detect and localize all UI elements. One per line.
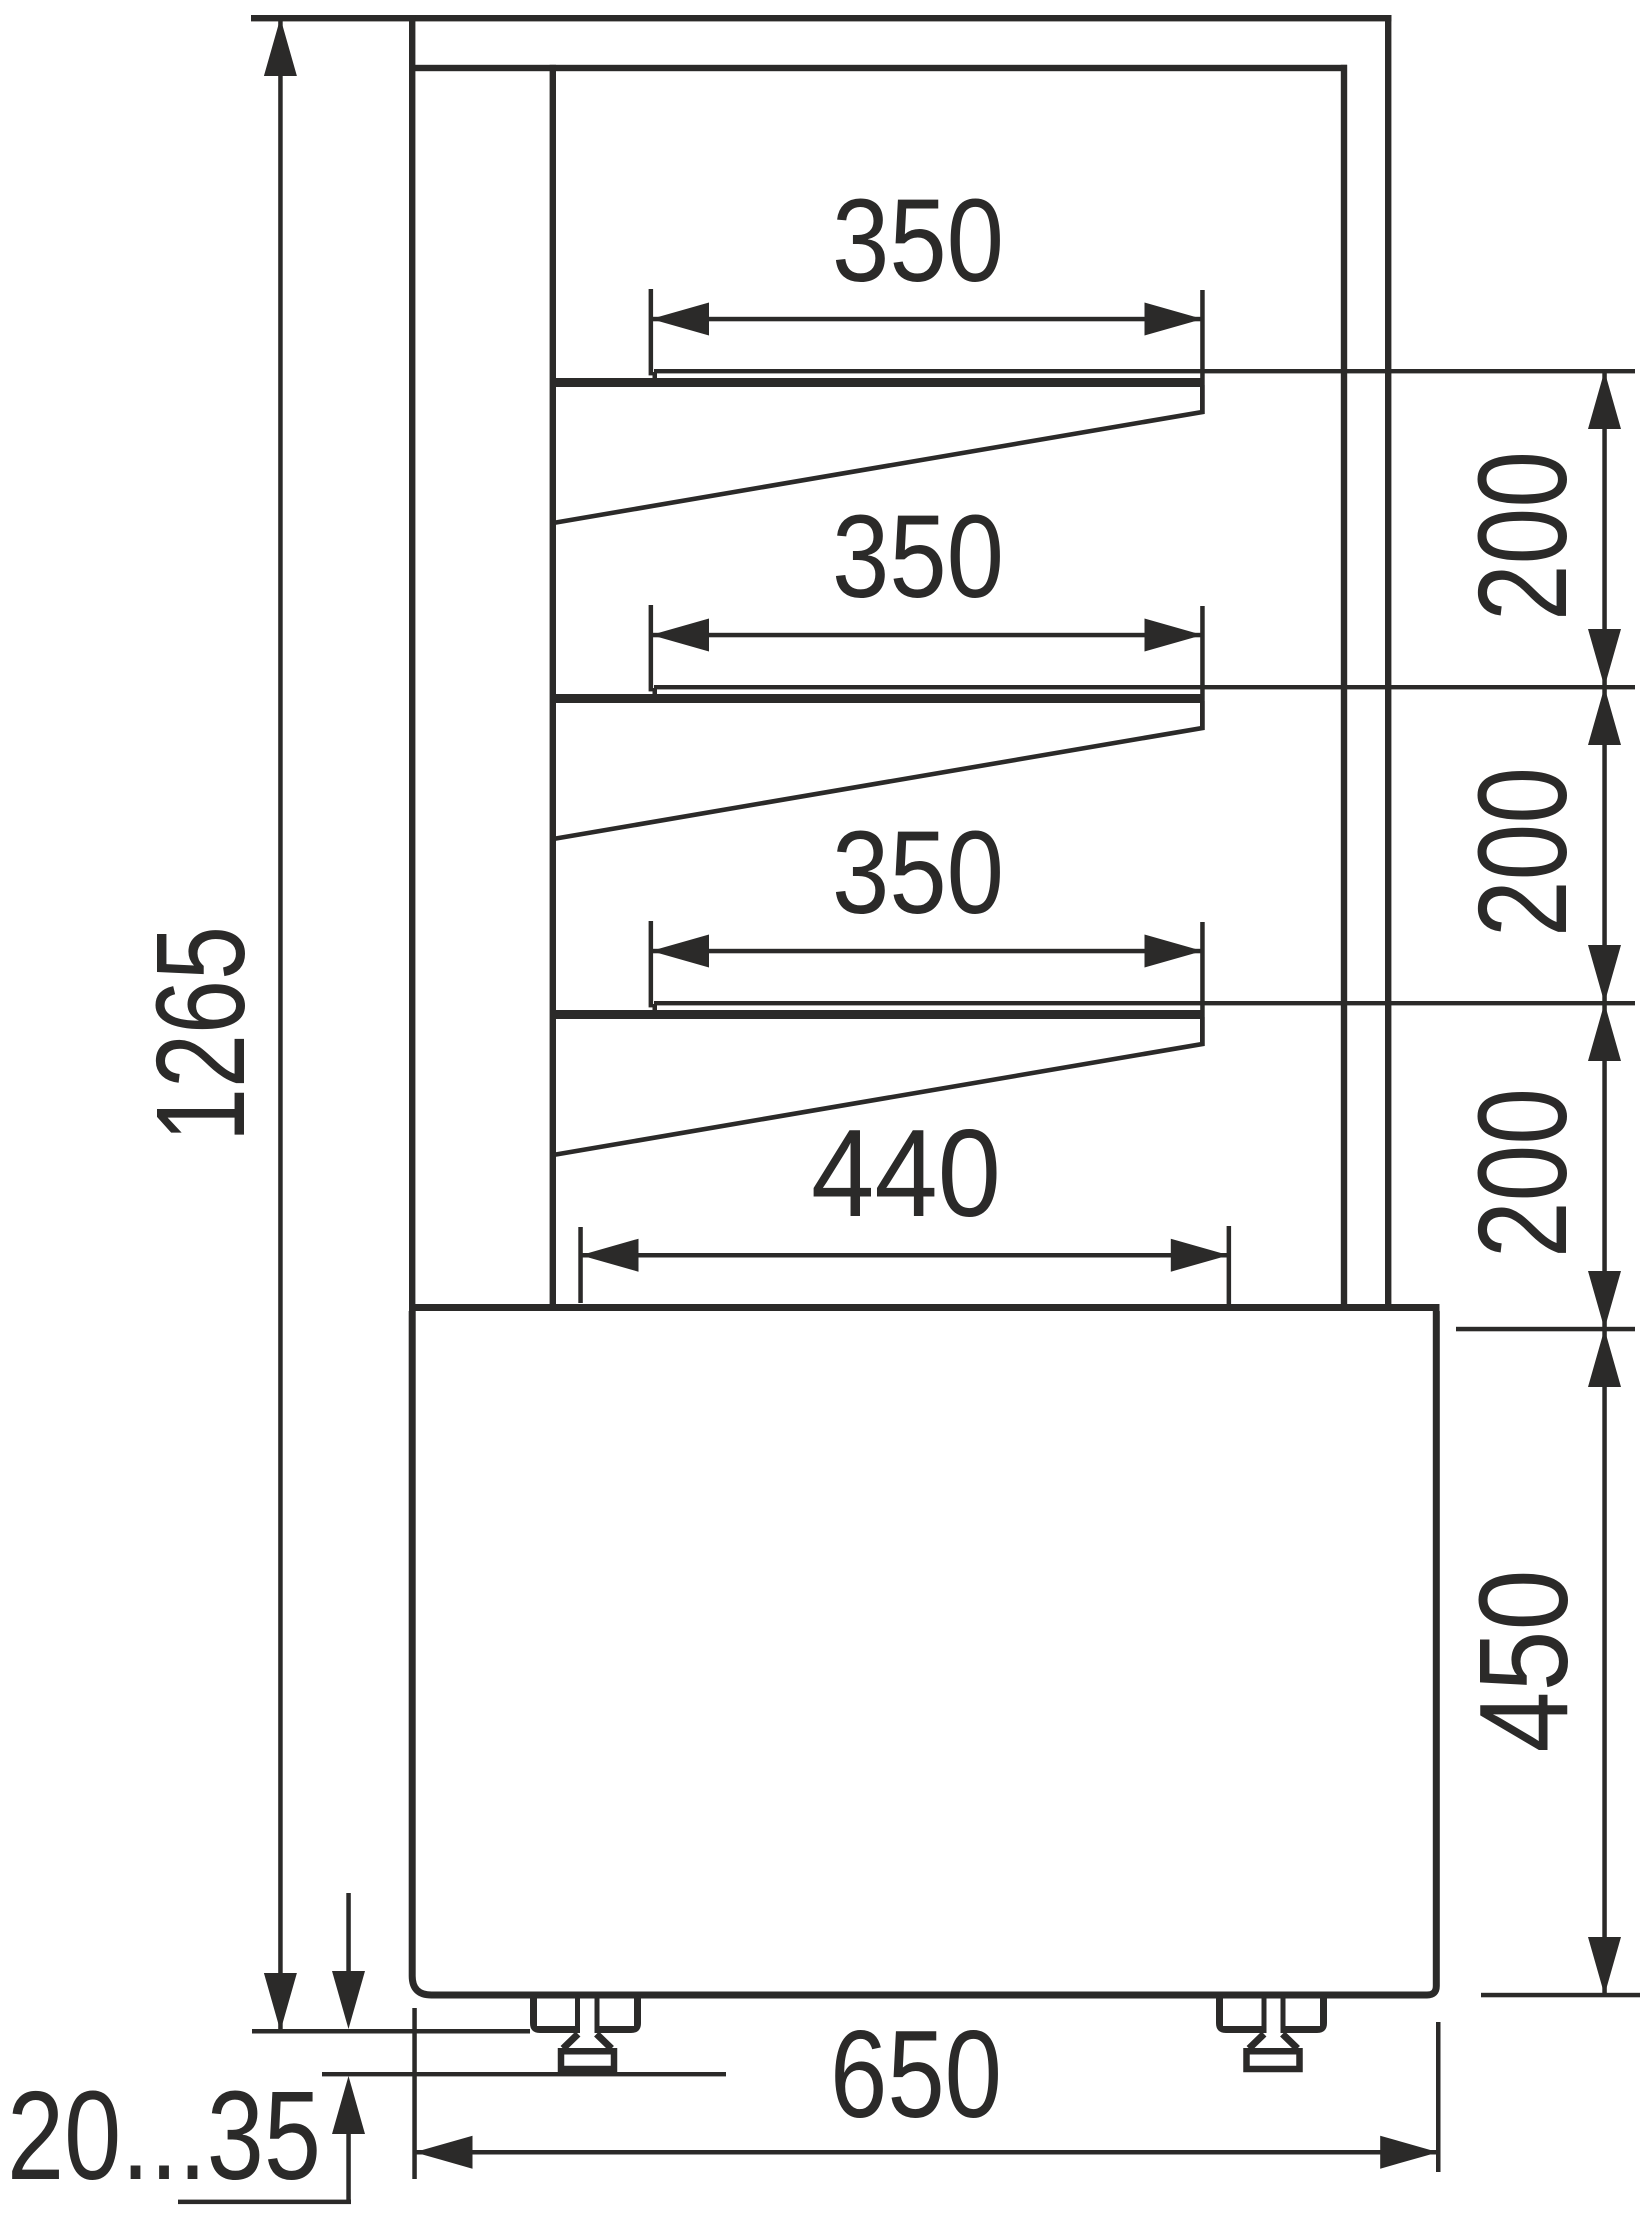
svg-text:200: 200 — [1452, 1088, 1593, 1258]
svg-text:650: 650 — [830, 2006, 1002, 2144]
svg-text:200: 200 — [1452, 451, 1593, 621]
svg-text:350: 350 — [832, 491, 1004, 623]
svg-text:350: 350 — [832, 175, 1004, 307]
svg-text:450: 450 — [1453, 1570, 1594, 1753]
svg-text:200: 200 — [1452, 767, 1593, 937]
svg-text:20...35: 20...35 — [7, 2065, 321, 2206]
svg-text:440: 440 — [811, 1105, 1001, 1243]
svg-text:1265: 1265 — [130, 926, 271, 1142]
svg-text:350: 350 — [832, 807, 1004, 939]
